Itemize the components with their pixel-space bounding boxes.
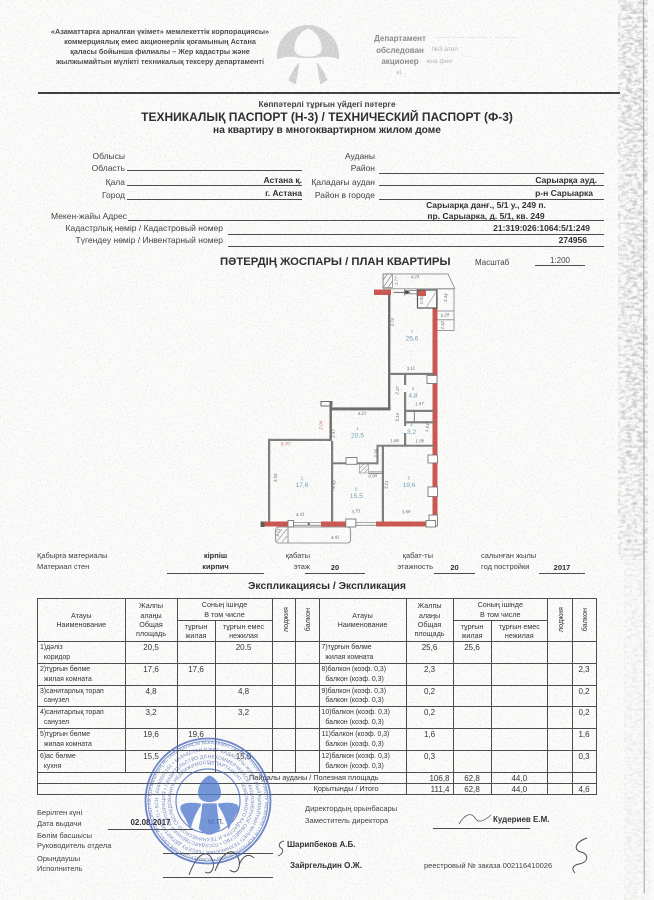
svg-text:3.74: 3.74	[390, 317, 395, 326]
svg-text:4: 4	[410, 423, 413, 429]
svg-text:1.97: 1.97	[415, 401, 424, 407]
svg-text:3,2: 3,2	[407, 429, 417, 436]
svg-text:2.20: 2.20	[439, 312, 450, 318]
svg-text:3.11: 3.11	[407, 365, 416, 371]
svg-text:4,8: 4,8	[408, 393, 418, 400]
svg-text:1.71: 1.71	[274, 527, 281, 537]
svg-text:4.33: 4.33	[331, 480, 337, 490]
svg-text:6: 6	[355, 487, 358, 493]
svg-text:1.63: 1.63	[424, 423, 431, 433]
svg-text:2.37: 2.37	[394, 385, 400, 396]
svg-text:5: 5	[408, 476, 411, 482]
svg-text:1.52: 1.52	[440, 320, 446, 329]
svg-text:3.73: 3.73	[351, 508, 361, 514]
svg-text:1: 1	[356, 426, 359, 432]
svg-text:2.04: 2.04	[318, 420, 323, 431]
svg-text:3: 3	[412, 386, 415, 392]
svg-text:3.93: 3.93	[273, 473, 278, 482]
svg-text:0.94: 0.94	[368, 473, 378, 479]
svg-text:0.92: 0.92	[419, 295, 424, 304]
svg-text:3.44: 3.44	[443, 293, 449, 303]
svg-text:25,6: 25,6	[405, 336, 418, 343]
svg-text:1.95: 1.95	[415, 438, 424, 443]
svg-text:2.47: 2.47	[331, 429, 337, 439]
svg-text:19,6: 19,6	[402, 482, 415, 489]
svg-text:3.21: 3.21	[383, 480, 389, 490]
svg-text:1.68: 1.68	[390, 438, 399, 443]
svg-text:3.59: 3.59	[402, 509, 411, 515]
svg-text:3.16: 3.16	[395, 412, 401, 421]
svg-text:17,6: 17,6	[295, 482, 308, 489]
svg-text:15,5: 15,5	[350, 493, 363, 500]
svg-text:4.23: 4.23	[410, 274, 419, 280]
svg-text:4.21: 4.21	[357, 410, 366, 416]
svg-text:6.70: 6.70	[281, 441, 291, 446]
svg-text:7: 7	[411, 329, 414, 335]
svg-text:4.41: 4.41	[331, 534, 341, 540]
svg-text:1.77: 1.77	[394, 276, 399, 285]
svg-text:0.65: 0.65	[373, 448, 378, 457]
svg-text:20,5: 20,5	[351, 433, 364, 440]
svg-text:4.31: 4.31	[296, 511, 305, 517]
svg-text:2: 2	[301, 476, 304, 482]
